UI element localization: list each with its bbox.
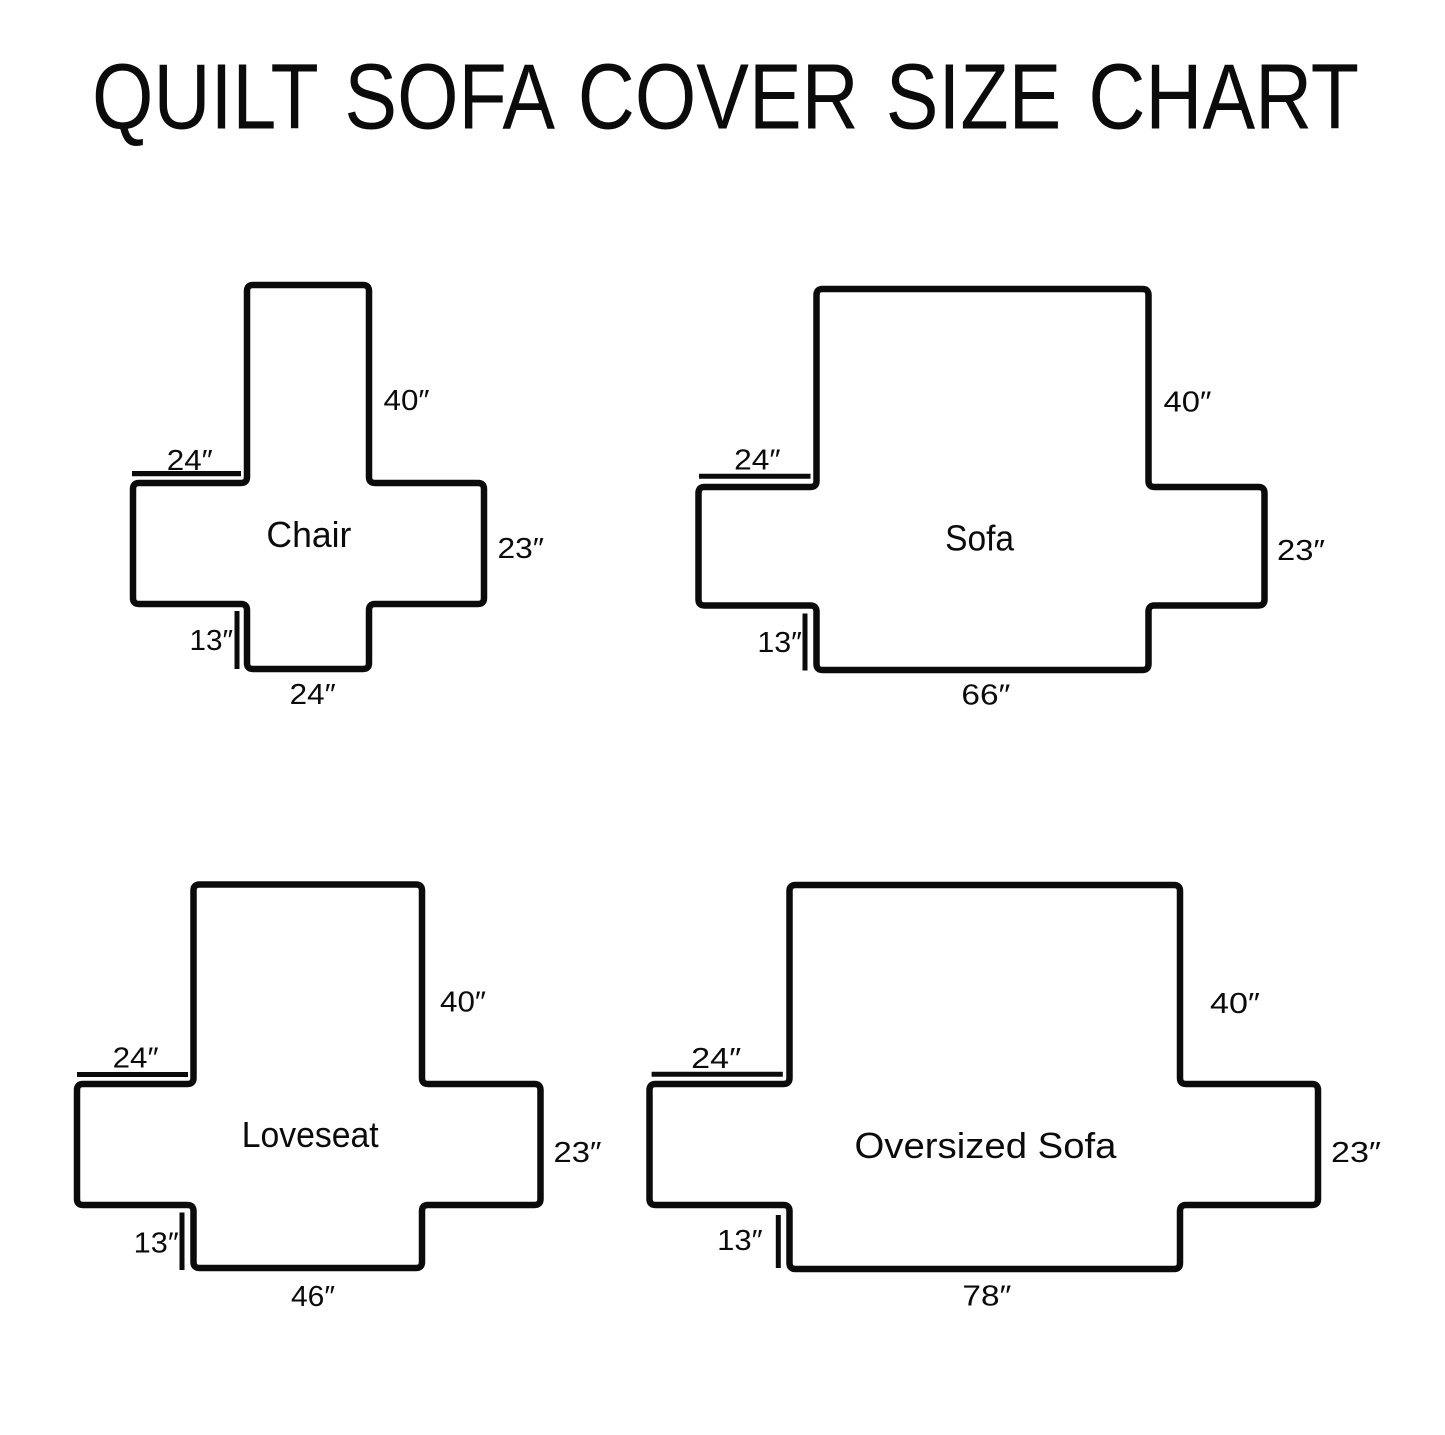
svg-text:40″: 40″	[440, 987, 486, 1019]
svg-text:78″: 78″	[962, 1281, 1011, 1313]
svg-text:40″: 40″	[384, 385, 430, 417]
svg-text:24″: 24″	[691, 1043, 741, 1075]
svg-text:QUILT SOFA COVER SIZE CHART: QUILT SOFA COVER SIZE CHART	[92, 45, 1359, 149]
svg-text:23″: 23″	[554, 1137, 602, 1169]
svg-text:24″: 24″	[113, 1043, 159, 1075]
svg-text:13″: 13″	[757, 627, 802, 659]
svg-text:Chair: Chair	[266, 514, 351, 555]
svg-text:13″: 13″	[717, 1225, 763, 1257]
svg-text:24″: 24″	[290, 679, 336, 711]
svg-text:13″: 13″	[190, 625, 234, 657]
svg-text:Sofa: Sofa	[945, 518, 1015, 559]
svg-text:40″: 40″	[1164, 387, 1212, 419]
svg-text:23″: 23″	[498, 533, 545, 565]
svg-text:Loveseat: Loveseat	[242, 1114, 379, 1155]
svg-text:13″: 13″	[134, 1228, 179, 1260]
svg-text:24″: 24″	[734, 445, 781, 477]
svg-text:66″: 66″	[961, 680, 1010, 712]
svg-text:Oversized Sofa: Oversized Sofa	[855, 1125, 1118, 1166]
svg-text:24″: 24″	[167, 445, 213, 477]
svg-text:23″: 23″	[1331, 1137, 1381, 1169]
svg-text:40″: 40″	[1210, 988, 1260, 1020]
svg-text:23″: 23″	[1277, 535, 1325, 567]
svg-text:46″: 46″	[291, 1281, 335, 1313]
